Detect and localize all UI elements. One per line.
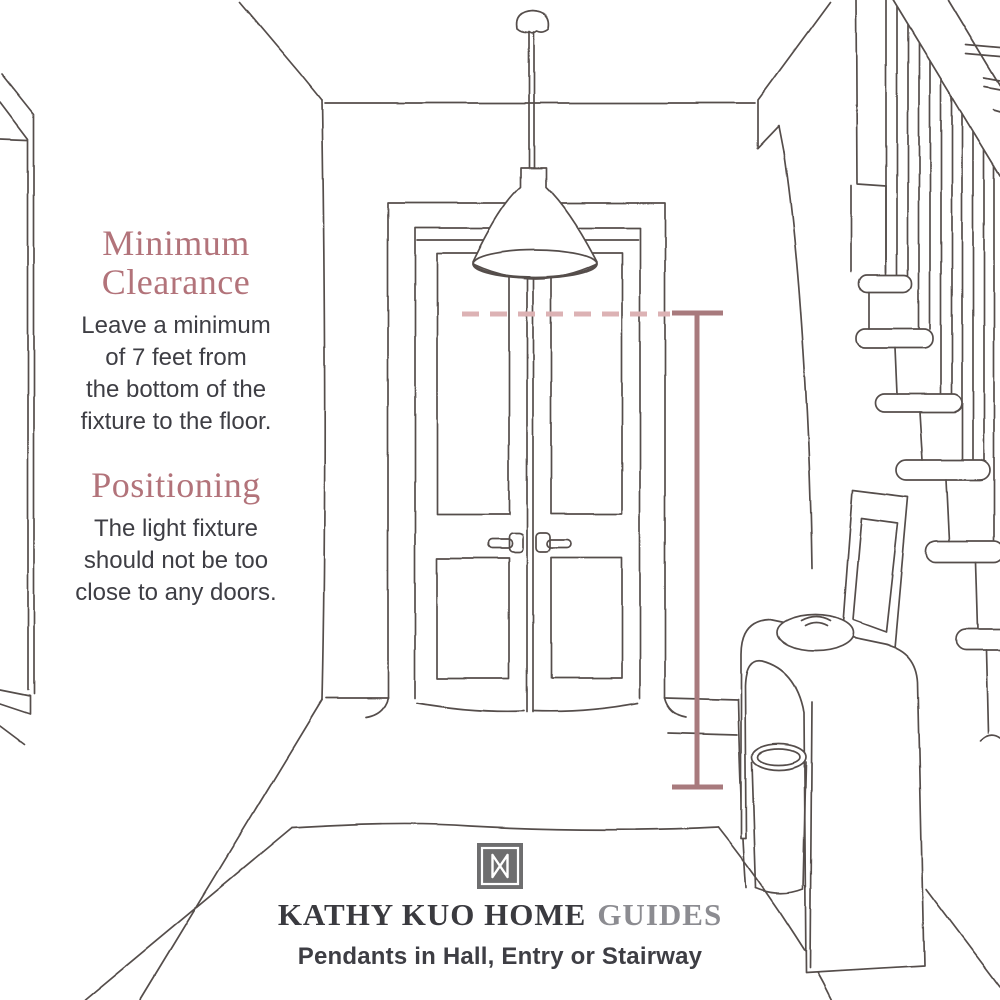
brand-title: KATHY KUO HOMEGUIDES <box>0 897 1000 933</box>
body-line: should not be too <box>30 545 322 577</box>
heading-line: Clearance <box>30 263 322 302</box>
brand-name: KATHY KUO HOME <box>278 897 587 932</box>
infographic-canvas: Minimum Clearance Leave a minimum of 7 f… <box>0 0 1000 1000</box>
pendant-light <box>473 11 597 279</box>
left-doorway <box>0 74 34 744</box>
body-line: of 7 feet from <box>30 342 322 374</box>
stair-handrail <box>893 0 1000 176</box>
decor-bowl <box>777 615 853 651</box>
pendant-rod <box>529 32 534 168</box>
heading-line: Positioning <box>30 466 322 505</box>
positioning-note: Positioning The light fixture should not… <box>30 466 322 609</box>
body-line: fixture to the floor. <box>30 406 322 438</box>
body-line: The light fixture <box>30 513 322 545</box>
pendant-canopy <box>517 11 550 33</box>
pendant-shade <box>473 168 597 277</box>
minimum-clearance-note: Minimum Clearance Leave a minimum of 7 f… <box>30 224 322 438</box>
body-line: Leave a minimum <box>30 310 322 342</box>
heading-line: Minimum <box>30 224 322 263</box>
kathy-kuo-home-logo <box>477 843 523 889</box>
double-door <box>366 203 686 717</box>
positioning-body: The light fixture should not be too clos… <box>30 513 322 609</box>
door-panel-upper-left <box>437 253 509 514</box>
brand-suffix: GUIDES <box>597 897 722 932</box>
body-line: the bottom of the <box>30 374 322 406</box>
body-line: close to any doors. <box>30 577 322 609</box>
minimum-clearance-heading: Minimum Clearance <box>30 224 322 302</box>
kkh-monogram-icon <box>477 843 523 889</box>
stair-stringer <box>851 0 886 272</box>
door-panel-lower-right <box>551 558 622 678</box>
door-handles <box>488 533 571 552</box>
guide-subtitle: Pendants in Hall, Entry or Stairway <box>0 943 1000 971</box>
positioning-heading: Positioning <box>30 466 322 505</box>
door-panel-upper-right <box>551 253 622 514</box>
basket <box>752 744 806 893</box>
minimum-clearance-body: Leave a minimum of 7 feet from the botto… <box>30 310 322 438</box>
door-panel-lower-left <box>437 558 509 678</box>
